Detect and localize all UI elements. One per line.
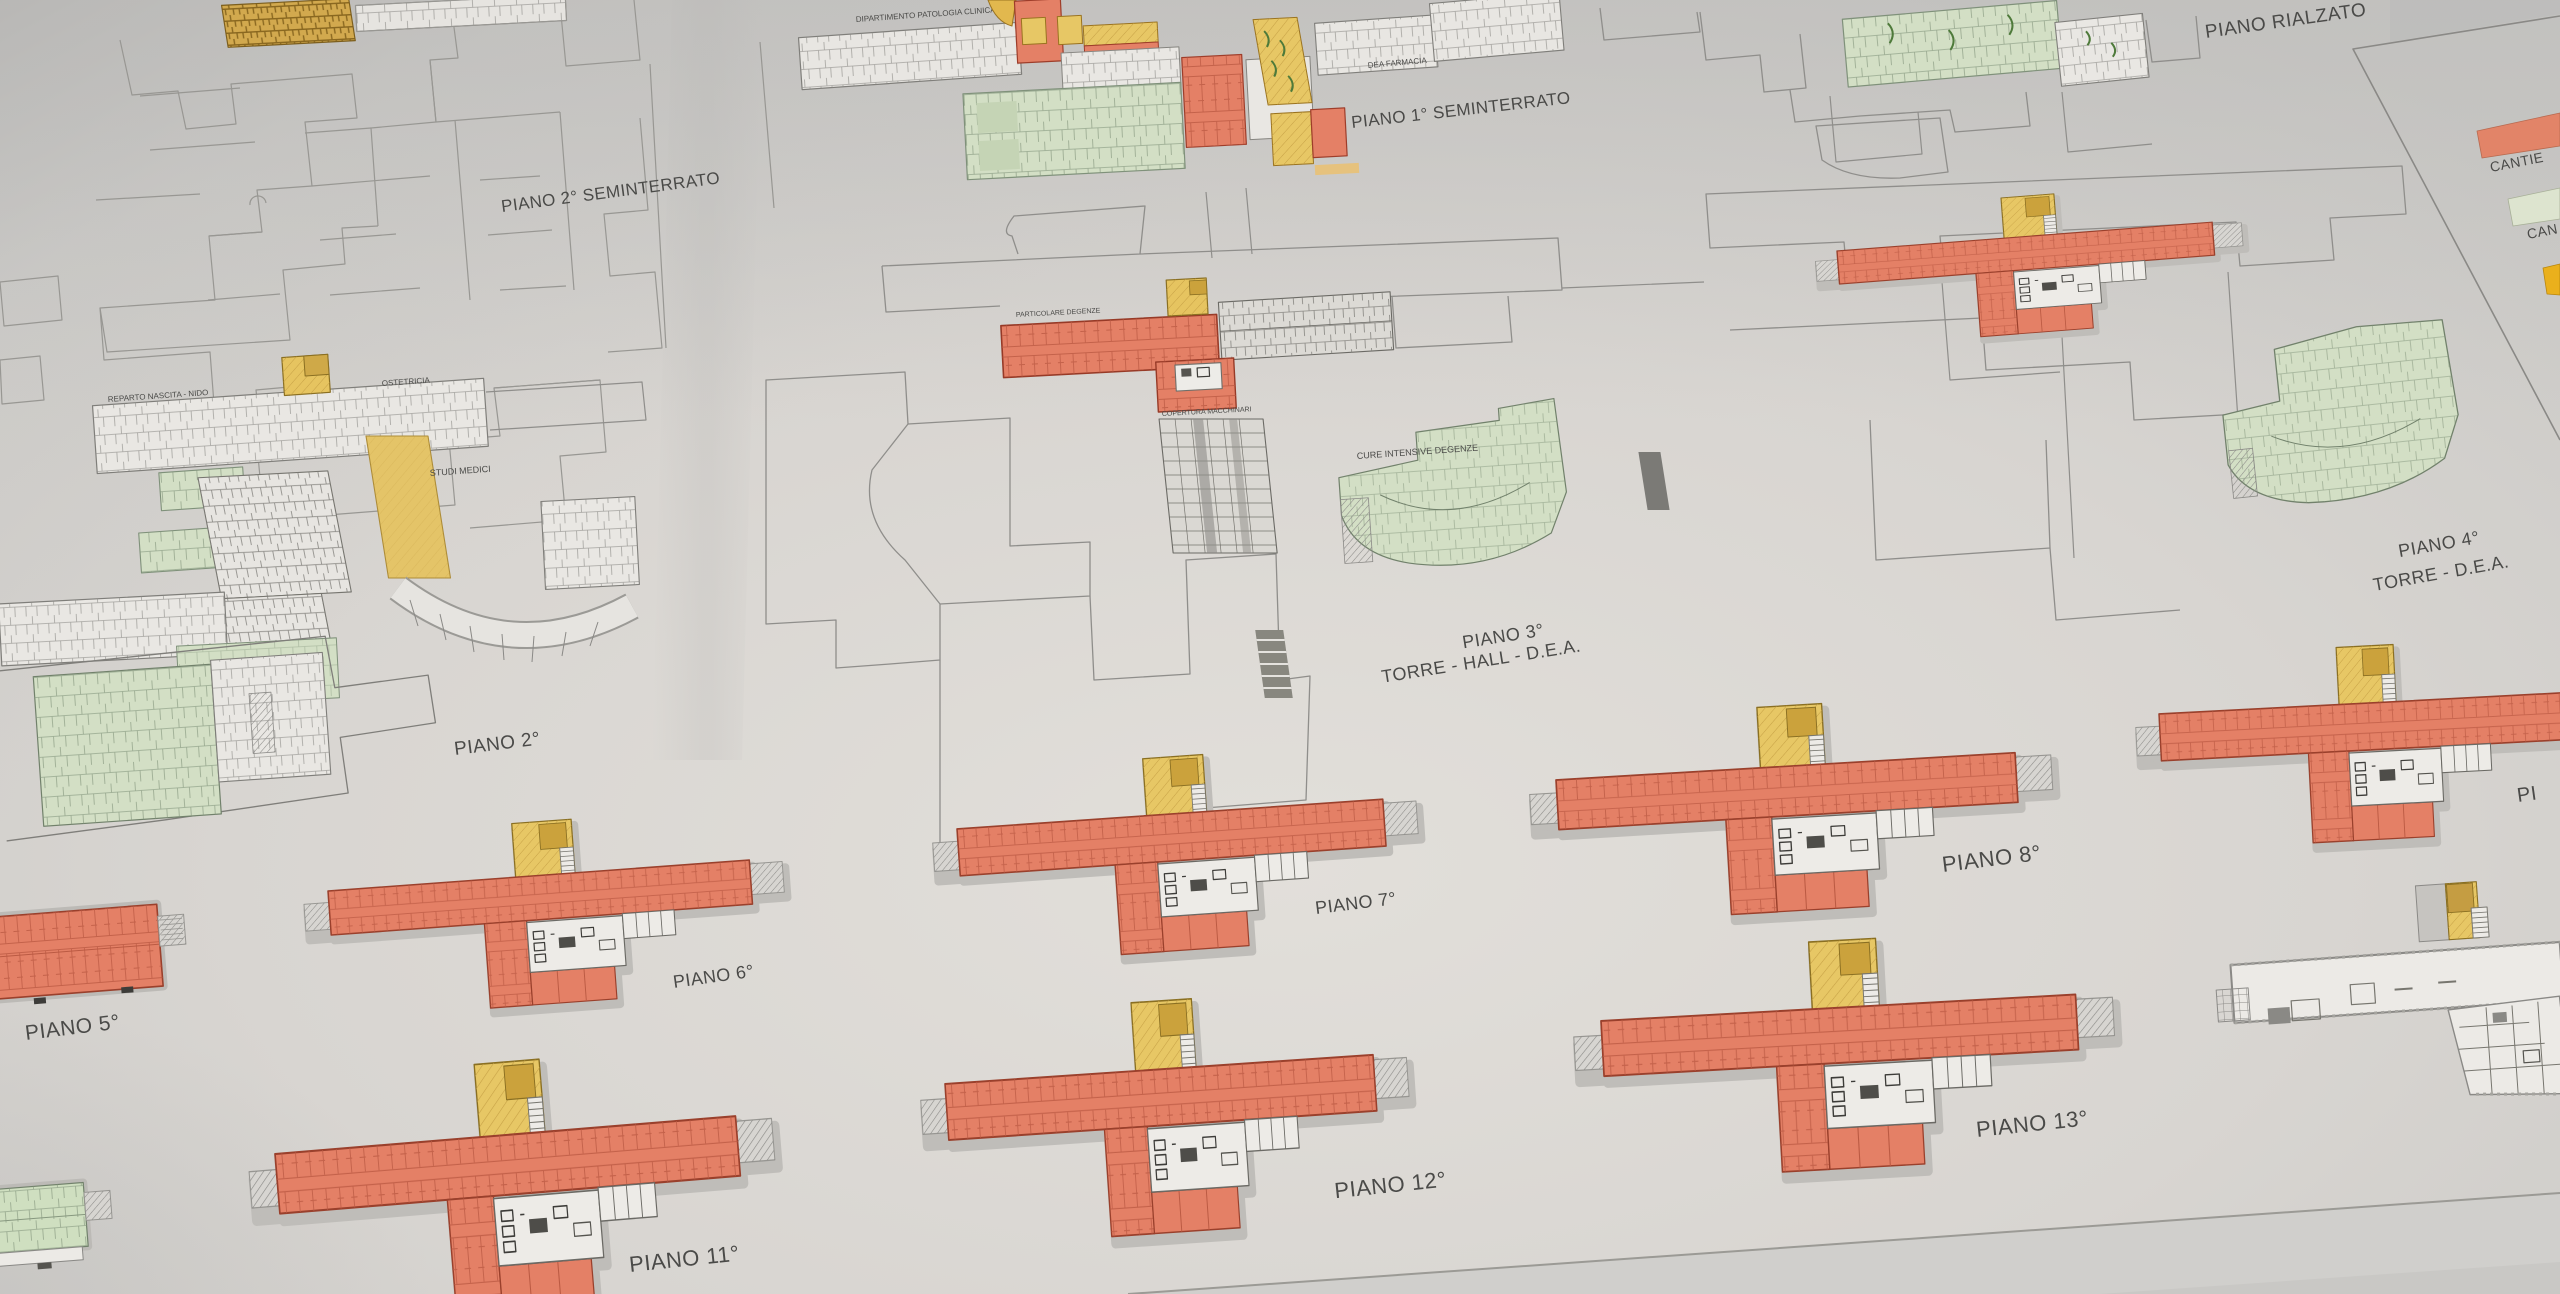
svg-text:PI: PI xyxy=(2516,782,2539,807)
